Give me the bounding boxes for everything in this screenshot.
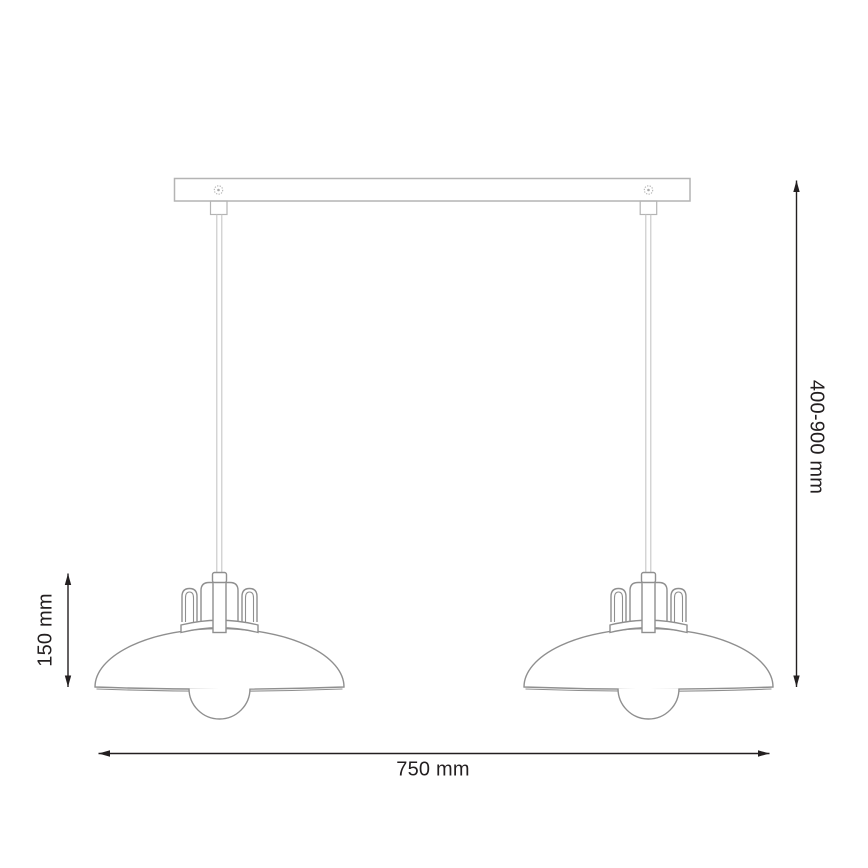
fitting-handle-left-inner — [615, 592, 623, 622]
cord-connector-right — [640, 201, 657, 215]
lamp-shade — [95, 629, 344, 690]
power-cord-right — [646, 215, 651, 575]
fitting-handle-right-inner — [246, 592, 254, 622]
fitting-handle-right — [671, 589, 686, 623]
fitting-handle-left — [611, 589, 626, 623]
dimension-label-suspension-height: 400-900 mm — [805, 380, 828, 494]
cord-connector-left — [211, 201, 228, 215]
light-bulb — [618, 689, 679, 719]
cord-collar — [213, 573, 227, 583]
fitting-tube — [213, 582, 226, 633]
light-bulb — [189, 689, 250, 719]
fitting-handle-right — [242, 589, 257, 623]
ceiling-rail — [175, 179, 691, 215]
dimension-label-shade-height: 150 mm — [35, 593, 58, 666]
technical-drawing — [0, 0, 868, 868]
pendant-lamp-dimension-diagram: 750 mm 150 mm 400-900 mm — [0, 0, 868, 868]
lamp-shade — [524, 629, 773, 690]
cord-collar — [642, 573, 656, 583]
dimension-label-overall-width: 750 mm — [396, 759, 469, 782]
pendant-lamp-right — [524, 573, 773, 719]
pendant-lamp-left — [95, 573, 344, 719]
fitting-handle-right-inner — [675, 592, 683, 622]
fitting-tube — [642, 582, 655, 633]
fitting-handle-left-inner — [186, 592, 194, 622]
power-cord-left — [217, 215, 222, 575]
fitting-handle-left — [182, 589, 197, 623]
